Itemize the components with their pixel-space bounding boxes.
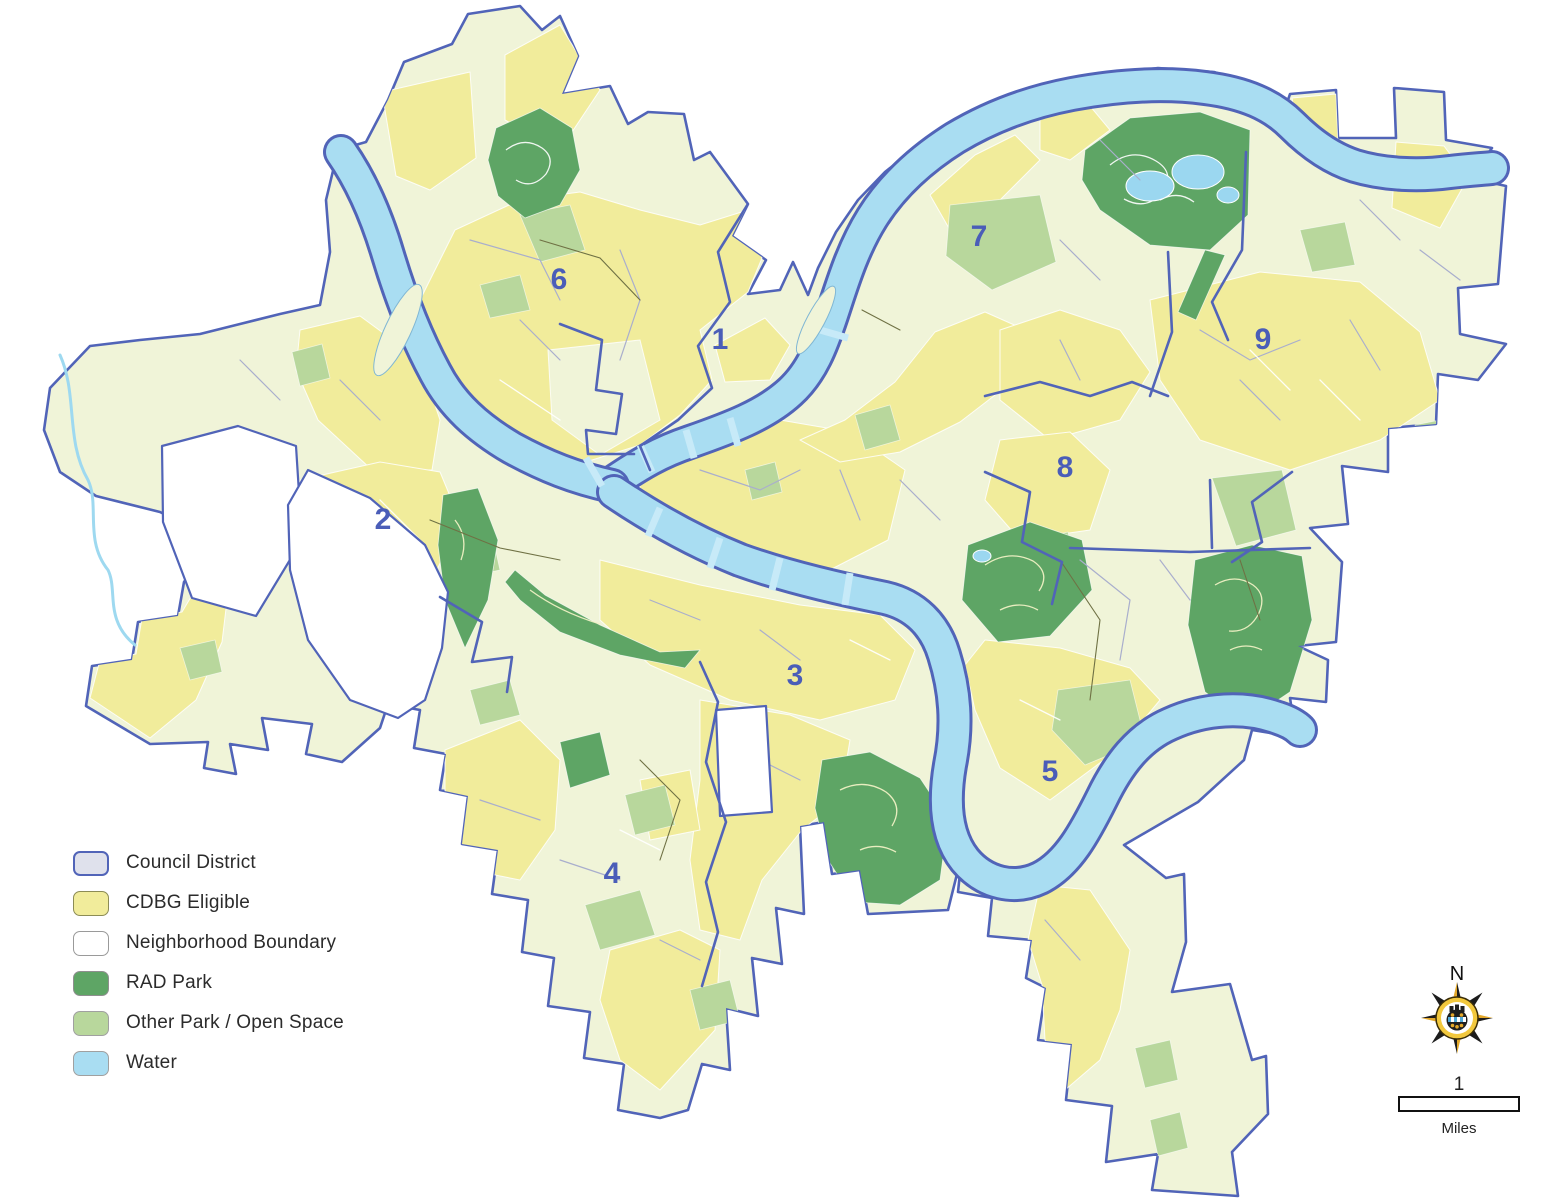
legend-swatch [73,1051,109,1076]
legend-item-cdbg-eligible: CDBG Eligible [73,883,344,923]
legend-swatch [73,971,109,996]
legend-label: CDBG Eligible [126,892,250,914]
district-label-6: 6 [551,263,568,296]
legend-swatch [73,1011,109,1036]
scale-bar-rect [1399,1097,1519,1111]
legend-label: Other Park / Open Space [126,1012,344,1034]
map-legend: Council DistrictCDBG EligibleNeighborhoo… [73,843,344,1083]
legend-swatch [73,891,109,916]
district-label-4: 4 [604,857,621,890]
compass-star [1421,982,1493,1054]
map-page: 123456789 N [0,0,1556,1203]
legend-swatch [73,851,109,876]
district-label-2: 2 [375,503,392,536]
legend-swatch [73,931,109,956]
legend-item-council-district: Council District [73,843,344,883]
legend-label: RAD Park [126,972,212,994]
district-label-7: 7 [971,220,988,253]
scale-bar: 1 Miles [1399,1074,1519,1137]
legend-label: Neighborhood Boundary [126,932,336,954]
scale-unit: Miles [1441,1120,1476,1137]
legend-item-water: Water [73,1043,344,1083]
compass-rose: N [1421,963,1493,1054]
district-label-5: 5 [1042,755,1059,788]
district-label-3: 3 [787,659,804,692]
legend-item-rad-park: RAD Park [73,963,344,1003]
district-label-9: 9 [1255,323,1272,356]
north-label: N [1450,963,1464,985]
legend-label: Water [126,1052,177,1074]
legend-item-neighborhood-boundary: Neighborhood Boundary [73,923,344,963]
city-seal [1447,1005,1468,1031]
legend-label: Council District [126,852,256,874]
district-label-8: 8 [1057,451,1074,484]
scale-distance: 1 [1454,1074,1465,1095]
legend-item-other-park-open-space: Other Park / Open Space [73,1003,344,1043]
enclave-mt-oliver [716,706,772,816]
district-label-1: 1 [712,323,729,356]
